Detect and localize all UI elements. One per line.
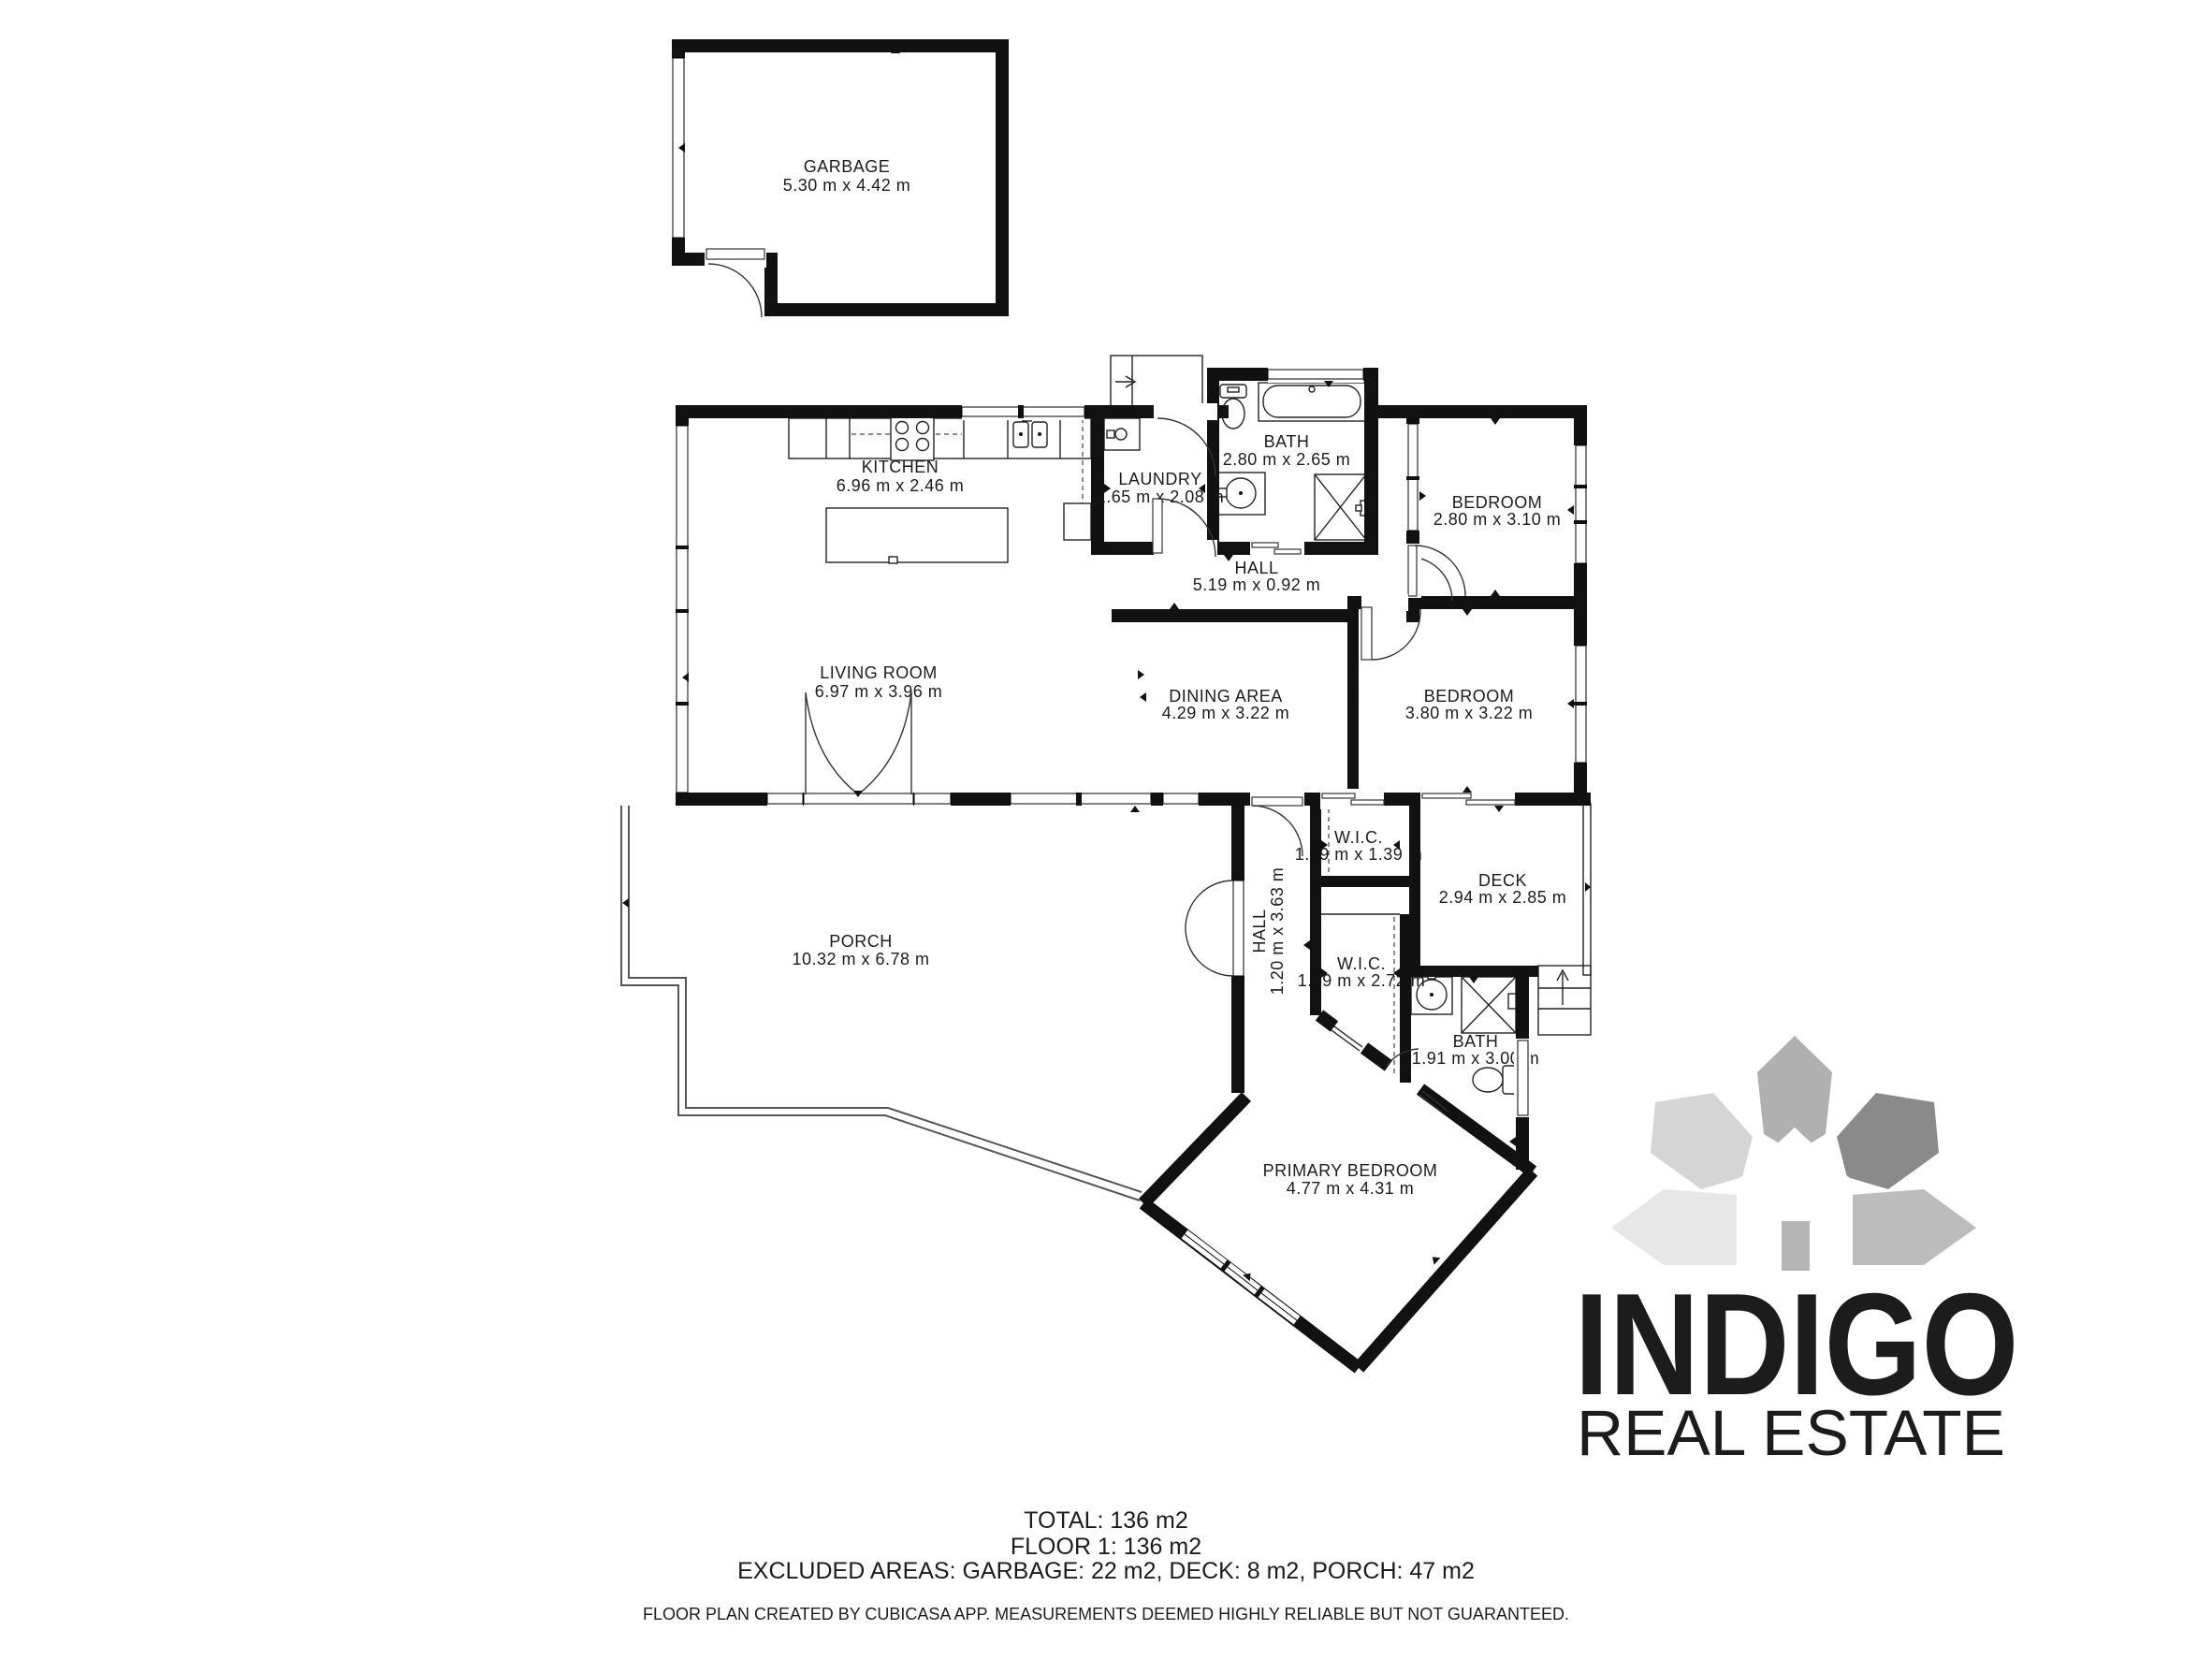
room-name: DECK: [1478, 871, 1527, 890]
room-name: DINING AREA: [1169, 687, 1283, 706]
room-label-kitchen: KITCHEN 6.96 m x 2.46 m: [837, 458, 965, 495]
window: [767, 793, 803, 804]
room-name: PRIMARY BEDROOM: [1263, 1161, 1438, 1180]
room-label-garbage: GARBAGE 5.30 m x 4.42 m: [783, 157, 911, 195]
room-label-hall: HALL 5.19 m x 0.92 m: [1193, 559, 1321, 594]
room-label-dining: DINING AREA 4.29 m x 3.22 m: [1162, 687, 1290, 722]
wic2-door: [1332, 1026, 1362, 1051]
room-name: BATH: [1264, 432, 1310, 451]
room-name: BATH: [1453, 1032, 1499, 1051]
floor-area-text: FLOOR 1: 136 m2: [1011, 1534, 1201, 1560]
shower-icon: [1315, 474, 1368, 540]
deck-steps-icon: [1538, 966, 1591, 1035]
room-label-hall2: HALL 1.20 m x 3.63 m: [1250, 867, 1287, 996]
room-dims: 3.80 m x 3.22 m: [1405, 704, 1534, 722]
window: [1518, 1041, 1528, 1115]
kitchen-island-icon: [826, 508, 1008, 563]
room-name: W.I.C.: [1334, 828, 1383, 847]
room-dims: 2.80 m x 2.65 m: [1223, 450, 1351, 469]
room-label-bedroom2: BEDROOM 3.80 m x 3.22 m: [1405, 687, 1534, 722]
room-label-bath: BATH 2.80 m x 2.65 m: [1223, 432, 1351, 469]
room-name: LIVING ROOM: [820, 663, 938, 682]
room-name: PORCH: [829, 932, 893, 951]
primary-windows: [1185, 1234, 1297, 1320]
deck-sliding-door: [1420, 791, 1515, 808]
room-dims: 10.32 m x 6.78 m: [792, 950, 929, 968]
room-dims: 6.96 m x 2.46 m: [837, 476, 965, 495]
room-name: HALL: [1250, 909, 1269, 953]
summary-text: TOTAL: 136 m2 FLOOR 1: 136 m2 EXCLUDED A…: [643, 1507, 1569, 1623]
total-area-text: TOTAL: 136 m2: [1024, 1507, 1188, 1534]
room-name: HALL: [1234, 559, 1278, 577]
bathtub-icon: [1259, 383, 1365, 421]
garbage-door: [705, 249, 766, 317]
room-dims: 6.97 m x 3.96 m: [815, 682, 943, 701]
washing-machine-icon: [1104, 418, 1140, 450]
room-name: LAUNDRY: [1118, 470, 1201, 488]
wic1-sliding-door: [1320, 789, 1384, 809]
room-label-living: LIVING ROOM 6.97 m x 3.96 m: [815, 663, 943, 701]
fixtures-layer: [621, 356, 1591, 1201]
window: [1163, 793, 1199, 804]
room-name: GARBAGE: [804, 157, 891, 176]
room-label-deck: DECK 2.94 m x 2.85 m: [1439, 871, 1567, 907]
room-dims: 2.94 m x 2.85 m: [1439, 888, 1567, 907]
room-dims: 4.29 m x 3.22 m: [1162, 704, 1290, 722]
window: [1268, 370, 1363, 379]
room-dims: 1.20 m x 3.63 m: [1268, 867, 1287, 996]
room-name: KITCHEN: [862, 458, 939, 476]
room-name: W.I.C.: [1337, 954, 1386, 973]
tick-markers: [622, 46, 1591, 1281]
window: [1233, 880, 1244, 976]
window: [1576, 445, 1586, 563]
logo-flower-icon: [1611, 1036, 1976, 1271]
window: [914, 793, 951, 804]
disclaimer-text: FLOOR PLAN CREATED BY CUBICASA APP. MEAS…: [643, 1605, 1569, 1623]
room-label-primary: PRIMARY BEDROOM 4.77 m x 4.31 m: [1263, 1161, 1438, 1198]
floor-plan-page: GARBAGE 5.30 m x 4.42 m KITCHEN 6.96 m x…: [0, 0, 2212, 1659]
room-label-bedroom1: BEDROOM 2.80 m x 3.10 m: [1433, 493, 1562, 529]
room-dims: 4.77 m x 4.31 m: [1287, 1179, 1415, 1198]
ensuite-toilet-icon: [1473, 1066, 1518, 1094]
excluded-areas-text: EXCLUDED AREAS: GARBAGE: 22 m2, DECK: 8 …: [737, 1558, 1475, 1584]
room-dims: 5.19 m x 0.92 m: [1193, 575, 1321, 594]
porch-outline: [621, 806, 1142, 1201]
bath-sliding-door: [1250, 540, 1304, 557]
room-dims: 5.30 m x 4.42 m: [783, 176, 911, 195]
stove-icon: [891, 416, 934, 460]
logo-tagline-text: REAL ESTATE: [1577, 1397, 2005, 1469]
ensuite-shower-icon: [1462, 977, 1516, 1033]
room-name: BEDROOM: [1452, 493, 1543, 512]
bedroom1-door: [1404, 544, 1465, 598]
room-label-porch: PORCH 10.32 m x 6.78 m: [792, 932, 929, 968]
logo: INDIGO REAL ESTATE: [1575, 1036, 2019, 1469]
room-name: BEDROOM: [1424, 687, 1515, 706]
room-dims: 2.80 m x 3.10 m: [1433, 510, 1562, 529]
floor-plan-drawing: GARBAGE 5.30 m x 4.42 m KITCHEN 6.96 m x…: [0, 0, 2212, 1659]
porch-double-doors: [1186, 880, 1233, 976]
